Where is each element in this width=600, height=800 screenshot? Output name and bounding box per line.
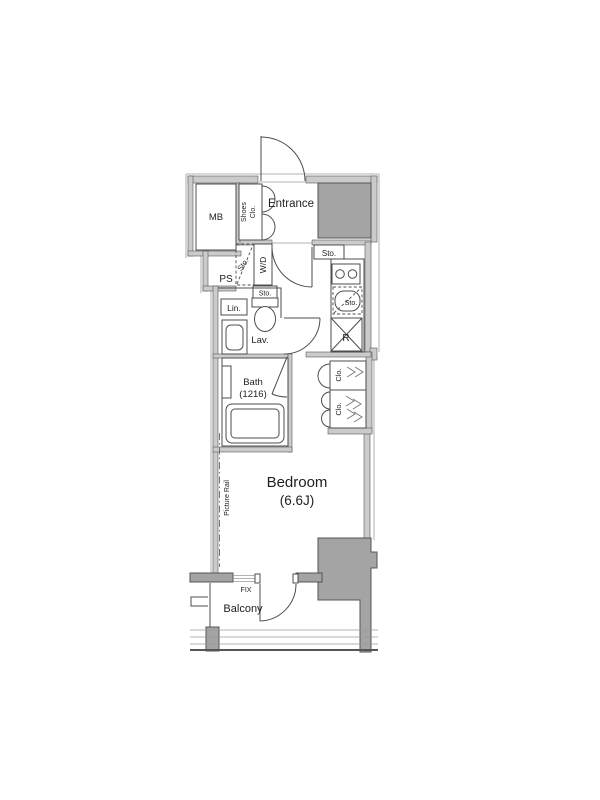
wall-segment bbox=[203, 251, 208, 291]
label-linen: Lin. bbox=[227, 303, 241, 313]
bath-counter bbox=[222, 366, 231, 398]
wall-segment bbox=[306, 352, 371, 357]
wall-segment-balcony-left bbox=[190, 573, 233, 582]
label-fix-window: FIX bbox=[241, 587, 252, 594]
label-picture-rail: Picture Rail bbox=[224, 480, 231, 516]
label-bath-2: (1216) bbox=[239, 389, 266, 400]
label-bath-1: Bath bbox=[243, 377, 263, 388]
window-jamb bbox=[255, 574, 260, 583]
balcony-step bbox=[191, 597, 208, 606]
wall-segment-balcony-right bbox=[296, 573, 322, 582]
wall-segment bbox=[188, 251, 241, 256]
label-washer-dryer: W/D bbox=[258, 257, 268, 274]
bedroom-door-arc bbox=[284, 318, 320, 354]
toilet-bowl bbox=[255, 307, 276, 332]
stove bbox=[332, 264, 360, 284]
label-wd-storage: Sto. bbox=[235, 257, 250, 273]
bath-door-leaf bbox=[272, 357, 287, 394]
label-closet-upper: Clo. bbox=[334, 368, 343, 381]
label-kitchen-storage: Sto. bbox=[345, 300, 358, 307]
pillar bbox=[318, 538, 377, 652]
label-bedroom-1: Bedroom bbox=[267, 474, 328, 491]
wall-segment bbox=[364, 432, 370, 538]
bathtub-inner bbox=[231, 409, 279, 438]
label-entrance: Entrance bbox=[268, 198, 314, 210]
window-jamb bbox=[293, 574, 298, 583]
wall-segment bbox=[306, 176, 377, 183]
closet-door-arc bbox=[318, 364, 330, 388]
wall-segment bbox=[328, 428, 372, 434]
bath-door-arc bbox=[272, 394, 287, 397]
wall-segment bbox=[366, 352, 372, 432]
floor-plan: MB Shoes Clo. Entrance Sto. Sto. W/D PS … bbox=[0, 0, 600, 800]
wall-segment bbox=[213, 447, 292, 452]
bath-room-outline bbox=[222, 358, 288, 446]
wall-segment bbox=[213, 286, 218, 578]
wall-segment bbox=[188, 176, 193, 256]
label-closet-lower: Clo. bbox=[334, 402, 343, 415]
wall-segment bbox=[371, 176, 377, 242]
label-meter-box: MB bbox=[209, 212, 223, 223]
label-hall-storage: Sto. bbox=[322, 249, 336, 258]
label-bedroom-2: (6.6J) bbox=[280, 493, 315, 508]
wall-segment bbox=[312, 240, 371, 245]
label-shoes-closet-1: Shoes bbox=[241, 202, 248, 222]
label-shoes-closet-2: Clo. bbox=[250, 206, 257, 219]
bathtub-outer bbox=[226, 404, 284, 443]
label-lavatory: Lav. bbox=[251, 335, 268, 346]
wall-segment bbox=[213, 354, 288, 358]
balcony-door-arc bbox=[260, 584, 296, 621]
closet-door-arc bbox=[322, 392, 331, 409]
balcony-post bbox=[206, 627, 219, 651]
label-balcony: Balcony bbox=[223, 603, 263, 615]
closet-door-arc bbox=[322, 410, 331, 427]
label-refrigerator: R bbox=[342, 333, 349, 344]
shoes-closet-door-arc bbox=[262, 214, 275, 240]
wall-segment bbox=[188, 176, 258, 183]
toilet-tank bbox=[252, 298, 278, 307]
floor-plan-page: MB Shoes Clo. Entrance Sto. Sto. W/D PS … bbox=[0, 0, 600, 800]
utility-shaft bbox=[318, 183, 371, 238]
wall-segment bbox=[288, 354, 292, 452]
hall-door-arc bbox=[272, 247, 312, 287]
label-pipe-space: PS bbox=[219, 274, 233, 285]
fix-window bbox=[233, 576, 257, 582]
label-toilet-storage: Sto. bbox=[259, 291, 272, 298]
wall-segment bbox=[365, 242, 371, 352]
